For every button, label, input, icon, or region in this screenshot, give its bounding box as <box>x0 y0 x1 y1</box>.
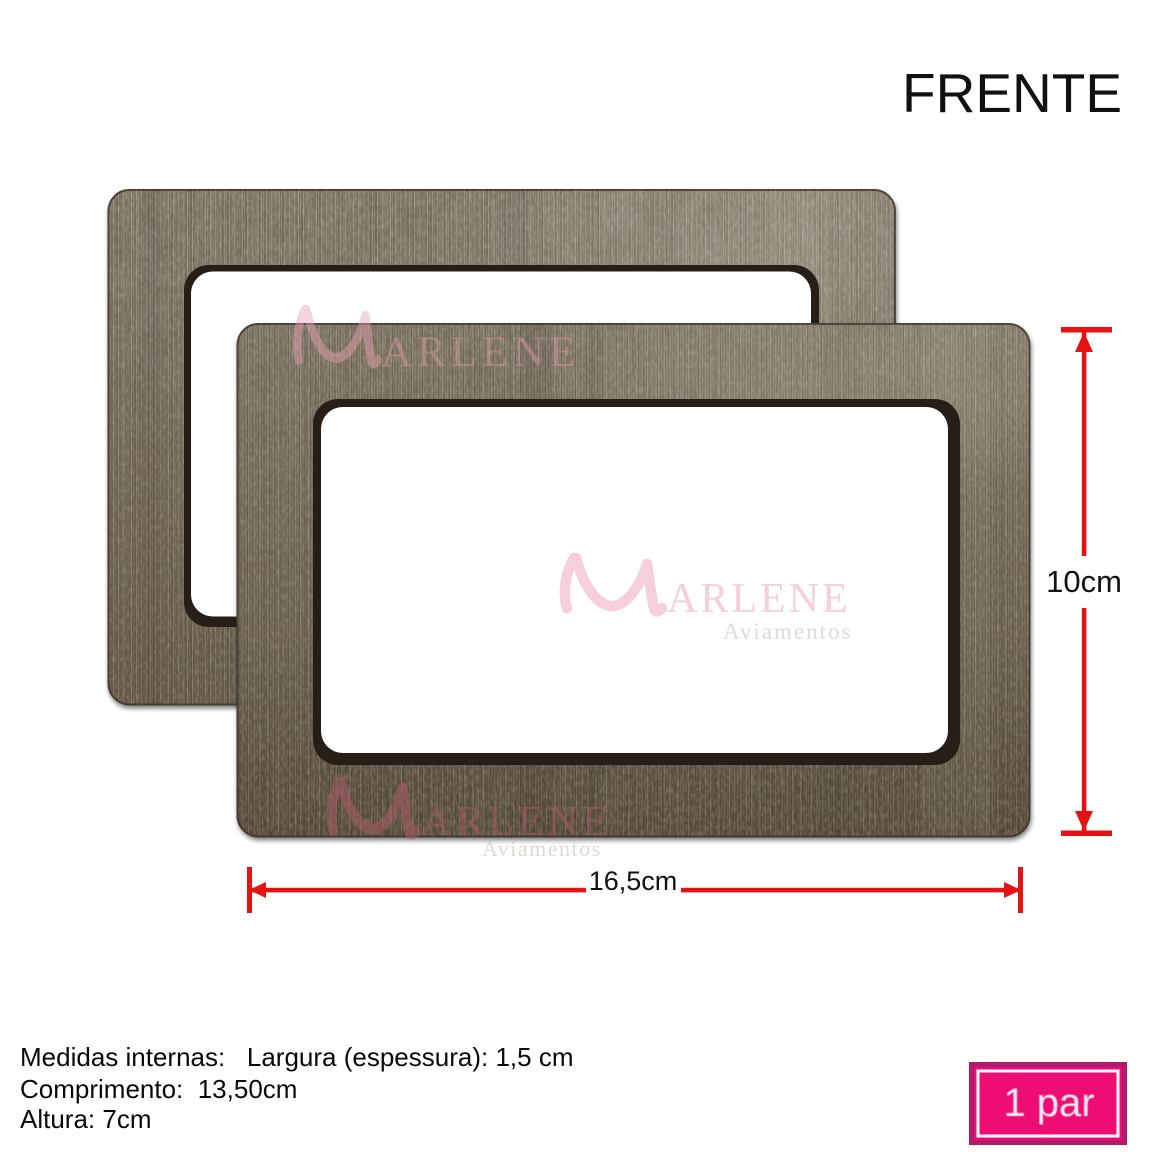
svg-text:Aviamentos: Aviamentos <box>482 836 602 861</box>
svg-text:1 par: 1 par <box>1003 1081 1094 1125</box>
svg-text:ARLENE: ARLENE <box>667 576 851 622</box>
svg-text:16,5cm: 16,5cm <box>589 866 678 896</box>
svg-text:FRENTE: FRENTE <box>902 62 1122 124</box>
svg-text:ARLENE: ARLENE <box>381 329 581 376</box>
svg-text:Medidas internas: Largura (e: Medidas internas: Largura (espessura): 1… <box>20 1042 573 1072</box>
svg-text:Comprimento: 13,50cm: Comprimento: 13,50cm <box>20 1074 297 1104</box>
svg-text:10cm: 10cm <box>1046 564 1122 599</box>
svg-text:Altura: 7cm: Altura: 7cm <box>20 1104 152 1134</box>
svg-text:Aviamentos: Aviamentos <box>723 619 852 644</box>
